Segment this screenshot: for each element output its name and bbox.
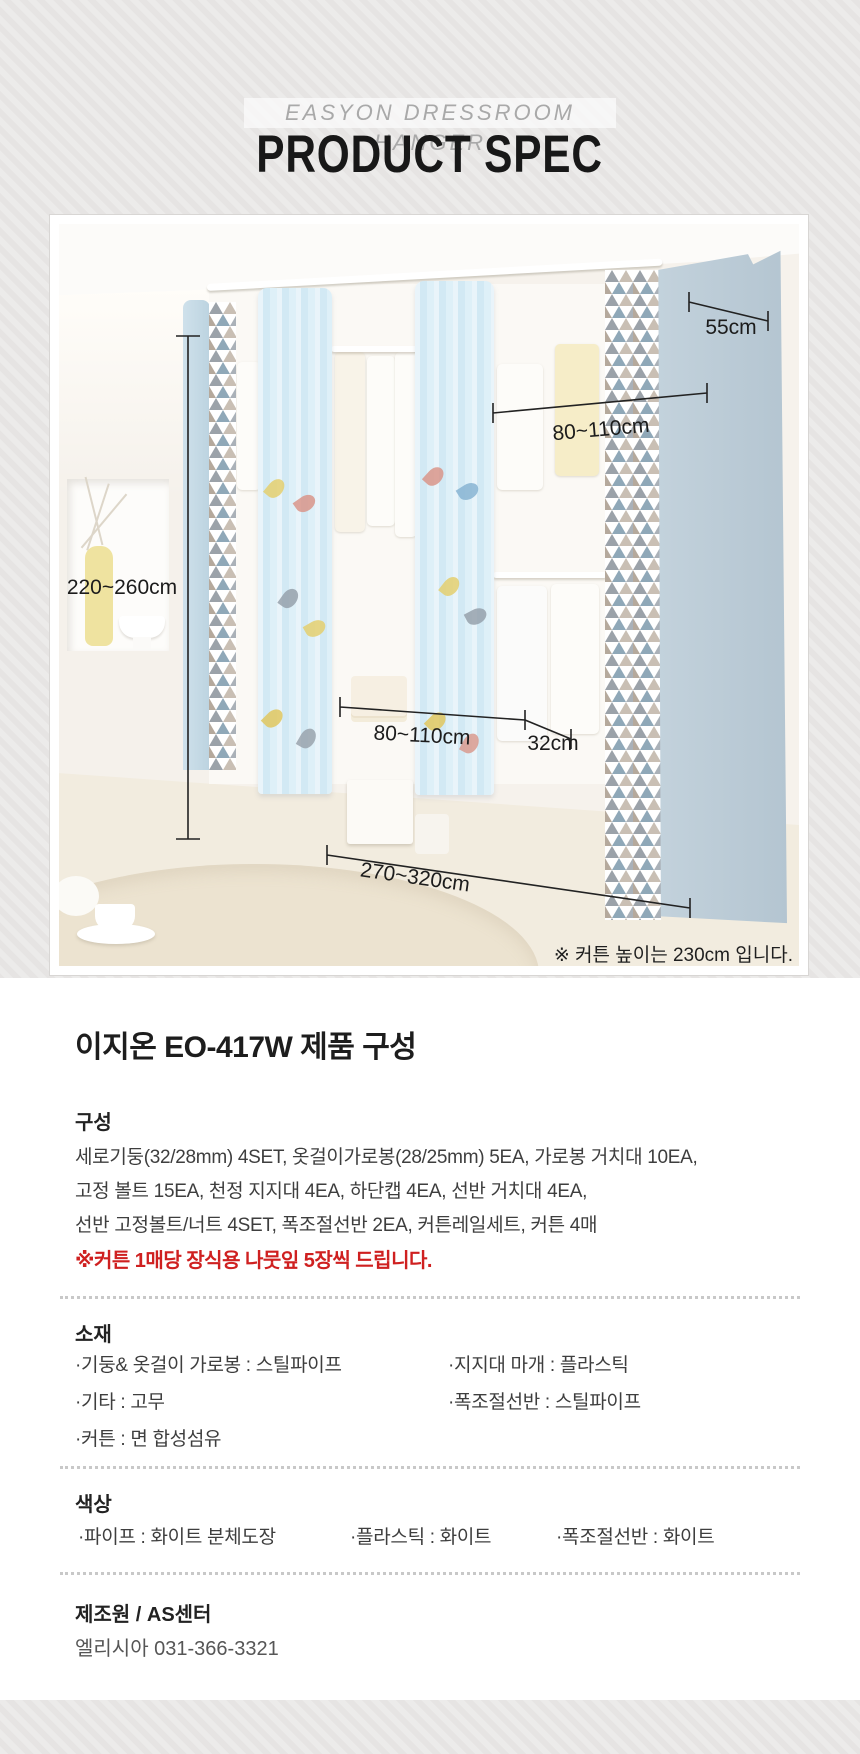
material-item: ·기타 : 고무 — [75, 1387, 165, 1414]
dotted-divider — [60, 1572, 800, 1575]
material-item: ·폭조절선반 : 스틸파이프 — [448, 1387, 641, 1414]
color-item: ·폭조절선반 : 화이트 — [556, 1522, 714, 1549]
dimension-top-depth: 55cm — [688, 316, 774, 340]
dotted-divider — [60, 1466, 800, 1469]
material-item: ·지지대 마개 : 플라스틱 — [448, 1350, 629, 1377]
product-photo-card: 220~260cm 55cm 80~110cm 80~110cm 32cm 27… — [49, 214, 809, 976]
material-label: 소재 — [75, 1318, 112, 1347]
manufacturer-value: 엘리시아 031-366-3321 — [75, 1632, 279, 1661]
color-item: ·파이프 : 화이트 분체도장 — [78, 1522, 276, 1549]
dimension-height: 220~260cm — [59, 576, 185, 600]
composition-label: 구성 — [75, 1106, 112, 1135]
material-item: ·커튼 : 면 합성섬유 — [75, 1424, 221, 1451]
color-label: 색상 — [75, 1488, 112, 1517]
composition-line: 세로기둥(32/28mm) 4SET, 옷걸이가로봉(28/25mm) 5EA,… — [75, 1142, 698, 1169]
curtain-leaf-notice: ※커튼 1매당 장식용 나뭇잎 5장씩 드립니다. — [75, 1244, 432, 1273]
color-item: ·플라스틱 : 화이트 — [350, 1522, 491, 1549]
manufacturer-label: 제조원 / AS센터 — [75, 1598, 211, 1627]
dotted-divider — [60, 1296, 800, 1299]
curtain-height-note: ※ 커튼 높이는 230cm 입니다. — [554, 940, 793, 966]
dressroom-photo-illustration: 220~260cm 55cm 80~110cm 80~110cm 32cm 27… — [59, 224, 799, 966]
spec-section: 이지온 EO-417W 제품 구성 구성 세로기둥(32/28mm) 4SET,… — [0, 978, 860, 1700]
composition-line: 선반 고정볼트/너트 4SET, 폭조절선반 2EA, 커튼레일세트, 커튼 4… — [75, 1210, 597, 1237]
page-title: PRODUCT SPEC — [0, 124, 860, 185]
material-item: ·기둥& 옷걸이 가로봉 : 스틸파이프 — [75, 1350, 342, 1377]
product-spec-page: EASYON DRESSROOM HANGER PRODUCT SPEC — [0, 0, 860, 1754]
spec-title: 이지온 EO-417W 제품 구성 — [75, 1022, 416, 1066]
dimension-shelf-depth: 32cm — [507, 732, 599, 756]
composition-line: 고정 볼트 15EA, 천정 지지대 4EA, 하단캡 4EA, 선반 거치대 … — [75, 1176, 587, 1203]
